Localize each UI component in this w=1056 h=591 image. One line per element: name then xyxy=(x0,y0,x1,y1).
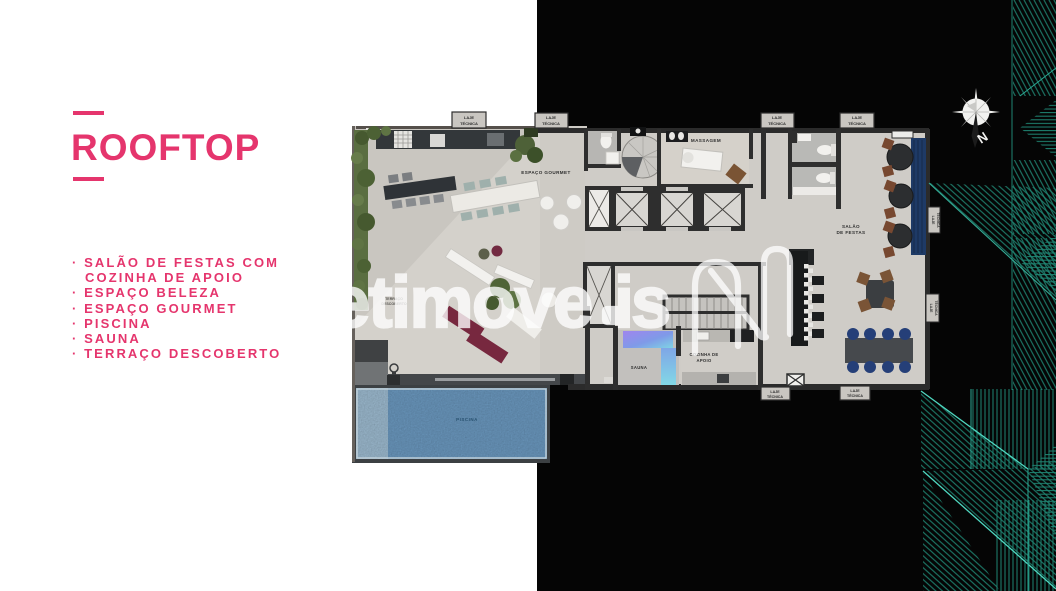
svg-text:TÉCNICA: TÉCNICA xyxy=(460,121,478,126)
svg-text:DE FESTAS: DE FESTAS xyxy=(836,230,865,235)
svg-text:LAJE: LAJE xyxy=(772,115,783,120)
svg-text:MASSAGEM: MASSAGEM xyxy=(691,138,721,143)
svg-text:LAJE: LAJE xyxy=(546,115,557,120)
svg-text:N: N xyxy=(974,129,990,147)
svg-text:is: is xyxy=(614,263,669,343)
svg-text:TÉCNICA: TÉCNICA xyxy=(767,394,783,399)
svg-text:TÉCNICA: TÉCNICA xyxy=(936,212,941,228)
svg-text:LAJE: LAJE xyxy=(770,390,780,394)
svg-text:LAJE: LAJE xyxy=(931,216,935,225)
svg-text:SAUNA: SAUNA xyxy=(631,365,647,370)
svg-text:LAJE: LAJE xyxy=(929,304,933,313)
svg-text:SALÃO: SALÃO xyxy=(842,223,860,229)
svg-text:LAJE: LAJE xyxy=(850,389,860,393)
svg-text:LAJE: LAJE xyxy=(852,115,863,120)
svg-text:TÉCNICA: TÉCNICA xyxy=(542,121,560,126)
svg-text:TÉCNICA: TÉCNICA xyxy=(848,121,866,126)
svg-text:TÉCNICA: TÉCNICA xyxy=(934,300,939,316)
svg-text:etimove: etimove xyxy=(330,263,592,343)
svg-text:TÉCNICA: TÉCNICA xyxy=(847,393,863,398)
svg-text:APOIO: APOIO xyxy=(697,358,712,363)
svg-text:LAJE: LAJE xyxy=(464,115,475,120)
svg-text:PISCINA: PISCINA xyxy=(456,417,478,422)
svg-text:TÉCNICA: TÉCNICA xyxy=(768,121,786,126)
svg-text:ESPAÇO GOURMET: ESPAÇO GOURMET xyxy=(521,170,570,175)
